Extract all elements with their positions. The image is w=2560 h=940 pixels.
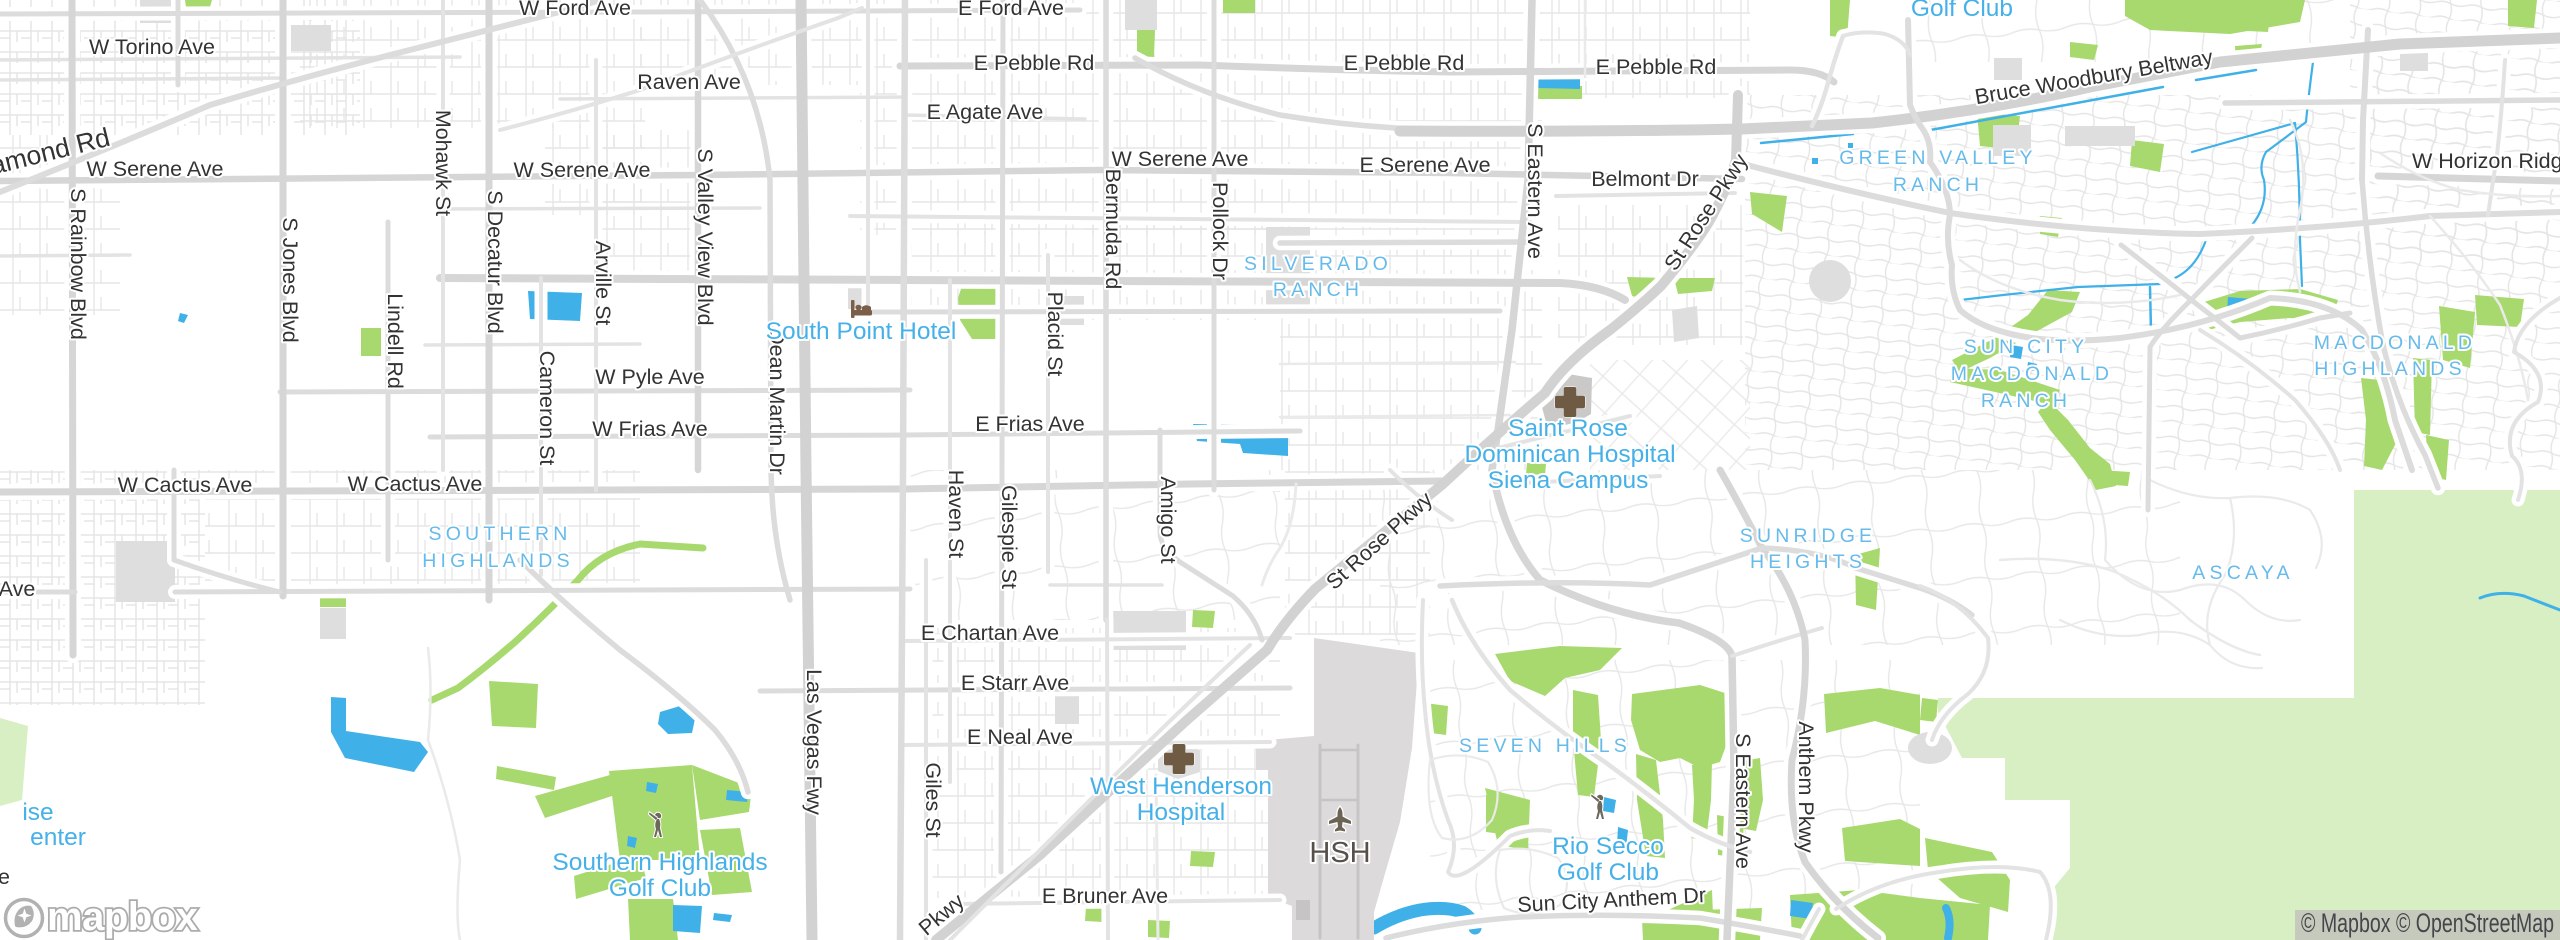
svg-text:Cameron St: Cameron St (535, 351, 559, 466)
svg-text:HEIGHTS: HEIGHTS (1750, 551, 1866, 573)
svg-text:Gilespie St: Gilespie St (997, 485, 1021, 589)
svg-text:Haven St: Haven St (944, 470, 968, 558)
svg-text:E Starr Ave: E Starr Ave (961, 671, 1069, 695)
svg-text:E Pebble Rd: E Pebble Rd (1344, 51, 1465, 75)
svg-text:Amigo St: Amigo St (1156, 476, 1180, 563)
svg-text:S Valley View Blvd: S Valley View Blvd (693, 148, 717, 325)
svg-text:Arville St: Arville St (591, 241, 615, 326)
svg-text:MACDONALD: MACDONALD (2314, 332, 2476, 354)
svg-text:E Serene Ave: E Serene Ave (1359, 153, 1490, 177)
svg-text:E Pebble Rd: E Pebble Rd (974, 51, 1095, 75)
svg-text:Pollock Dr: Pollock Dr (1208, 182, 1232, 280)
svg-text:S Decatur Blvd: S Decatur Blvd (483, 190, 507, 333)
svg-text:W Serene Ave: W Serene Ave (1111, 147, 1248, 171)
svg-text:Hospital: Hospital (1137, 799, 1226, 826)
svg-text:GREEN VALLEY: GREEN VALLEY (1839, 147, 2036, 169)
svg-text:Golf Club: Golf Club (1911, 0, 2013, 22)
svg-text:E Chartan Ave: E Chartan Ave (921, 621, 1059, 645)
svg-text:E Bruner Ave: E Bruner Ave (1042, 884, 1168, 908)
svg-text:W Torino Ave: W Torino Ave (89, 35, 215, 59)
svg-text:Ave: Ave (0, 577, 35, 601)
svg-text:W Cactus Ave: W Cactus Ave (118, 473, 253, 497)
svg-text:E Agate Ave: E Agate Ave (927, 100, 1044, 124)
svg-text:HSH: HSH (1309, 837, 1370, 869)
svg-text:South Point Hotel: South Point Hotel (766, 318, 957, 345)
svg-text:Placid St: Placid St (1043, 292, 1067, 377)
svg-text:RANCH: RANCH (1893, 174, 1983, 196)
svg-text:Dominican Hospital: Dominican Hospital (1464, 441, 1675, 468)
svg-text:Rio Secco: Rio Secco (1552, 833, 1664, 860)
svg-text:SILVERADO: SILVERADO (1244, 253, 1392, 275)
svg-text:RANCH: RANCH (1273, 279, 1363, 301)
svg-text:W Ford Ave: W Ford Ave (519, 0, 631, 20)
svg-text:W Serene Ave: W Serene Ave (513, 158, 650, 182)
svg-text:e: e (0, 865, 10, 889)
svg-text:Belmont Dr: Belmont Dr (1591, 167, 1699, 191)
svg-text:SUNRIDGE: SUNRIDGE (1740, 525, 1877, 547)
svg-text:SUN CITY: SUN CITY (1964, 336, 2089, 358)
svg-text:W Cactus Ave: W Cactus Ave (348, 472, 483, 496)
svg-text:© Mapbox © OpenStreetMap: © Mapbox © OpenStreetMap (2301, 908, 2554, 938)
svg-text:W Serene Ave: W Serene Ave (86, 157, 223, 181)
svg-text:S Eastern Ave: S Eastern Ave (1523, 123, 1547, 259)
svg-text:SEVEN HILLS: SEVEN HILLS (1459, 735, 1631, 757)
svg-text:Mohawk St: Mohawk St (431, 110, 455, 216)
svg-text:West Henderson: West Henderson (1090, 773, 1272, 800)
svg-text:W Pyle Ave: W Pyle Ave (595, 365, 705, 389)
svg-text:S Eastern Ave: S Eastern Ave (1731, 733, 1755, 869)
svg-text:W Frias Ave: W Frias Ave (592, 417, 708, 441)
svg-text:Anthem Pkwy: Anthem Pkwy (1794, 721, 1818, 853)
svg-text:Southern Highlands: Southern Highlands (552, 849, 767, 876)
svg-text:S Rainbow Blvd: S Rainbow Blvd (66, 188, 90, 340)
svg-text:RANCH: RANCH (1981, 390, 2071, 412)
svg-text:E Pebble Rd: E Pebble Rd (1596, 55, 1717, 79)
svg-text:Lindell Rd: Lindell Rd (383, 293, 407, 389)
svg-text:Dean Martin Dr: Dean Martin Dr (765, 329, 789, 475)
svg-text:ASCAYA: ASCAYA (2192, 562, 2293, 584)
svg-text:Saint Rose: Saint Rose (1508, 415, 1628, 442)
svg-text:enter: enter (30, 824, 86, 851)
svg-text:mapbox: mapbox (47, 895, 198, 939)
svg-text:E Ford Ave: E Ford Ave (958, 0, 1064, 20)
svg-text:Raven Ave: Raven Ave (637, 70, 741, 94)
svg-text:MACDONALD: MACDONALD (1951, 363, 2113, 385)
svg-text:Bermuda Rd: Bermuda Rd (1101, 169, 1125, 290)
svg-text:HIGHLANDS: HIGHLANDS (422, 550, 574, 572)
svg-text:Siena Campus: Siena Campus (1488, 467, 1649, 494)
svg-text:S Jones Blvd: S Jones Blvd (278, 217, 302, 342)
svg-text:HIGHLANDS: HIGHLANDS (2314, 358, 2466, 380)
svg-text:SOUTHERN: SOUTHERN (428, 523, 571, 545)
svg-text:Giles St: Giles St (921, 762, 945, 837)
svg-text:Las Vegas Fwy: Las Vegas Fwy (802, 669, 826, 815)
svg-text:E Frias Ave: E Frias Ave (975, 412, 1085, 436)
svg-text:E Neal Ave: E Neal Ave (967, 725, 1073, 749)
svg-text:W Horizon Ridge: W Horizon Ridge (2412, 149, 2560, 173)
svg-text:ise: ise (22, 799, 53, 826)
svg-text:Golf Club: Golf Club (1557, 859, 1659, 886)
svg-text:Golf Club: Golf Club (609, 875, 711, 902)
